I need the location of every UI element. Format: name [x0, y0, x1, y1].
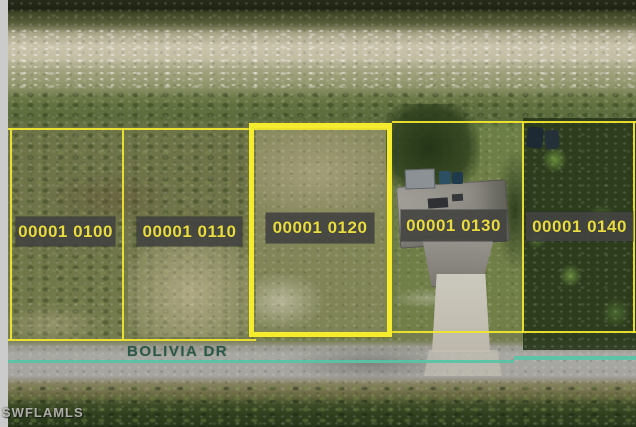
roof-skylight — [452, 194, 463, 202]
parcel-boundary-line — [392, 121, 636, 123]
shed — [405, 168, 436, 189]
parcel-id-label: 00001 0140 — [526, 212, 633, 241]
parcel-boundary-line — [8, 339, 256, 341]
parcel-id-label: 00001 0120 — [266, 213, 374, 243]
parked-vehicle — [544, 130, 559, 150]
parcel-id-label: 00001 0110 — [137, 217, 242, 246]
driveway-apron — [424, 350, 502, 376]
parked-vehicle — [526, 126, 544, 149]
street-name-label: BOLIVIA DR — [127, 343, 228, 360]
parcel-id-label: 00001 0130 — [401, 210, 506, 241]
blue-bin — [452, 172, 463, 184]
parcel-boundary-line — [522, 121, 524, 333]
aerial-parcel-map: BOLIVIA DR 00001 0100 00001 0110 00001 0… — [0, 0, 636, 427]
street-centerline — [8, 360, 514, 363]
parcel-id-label: 00001 0100 — [16, 217, 115, 246]
street-centerline — [514, 356, 636, 360]
parcel-boundary-line — [10, 128, 12, 341]
blue-bin — [439, 171, 451, 184]
parcel-boundary-line — [633, 121, 635, 333]
driveway — [432, 274, 490, 352]
vegetation-below-road — [8, 382, 636, 427]
roof-skylight — [428, 197, 449, 208]
parcel-boundary-line — [392, 331, 636, 333]
mls-watermark: SWFLAMLS — [2, 405, 84, 420]
parcel-boundary-line — [122, 128, 124, 341]
